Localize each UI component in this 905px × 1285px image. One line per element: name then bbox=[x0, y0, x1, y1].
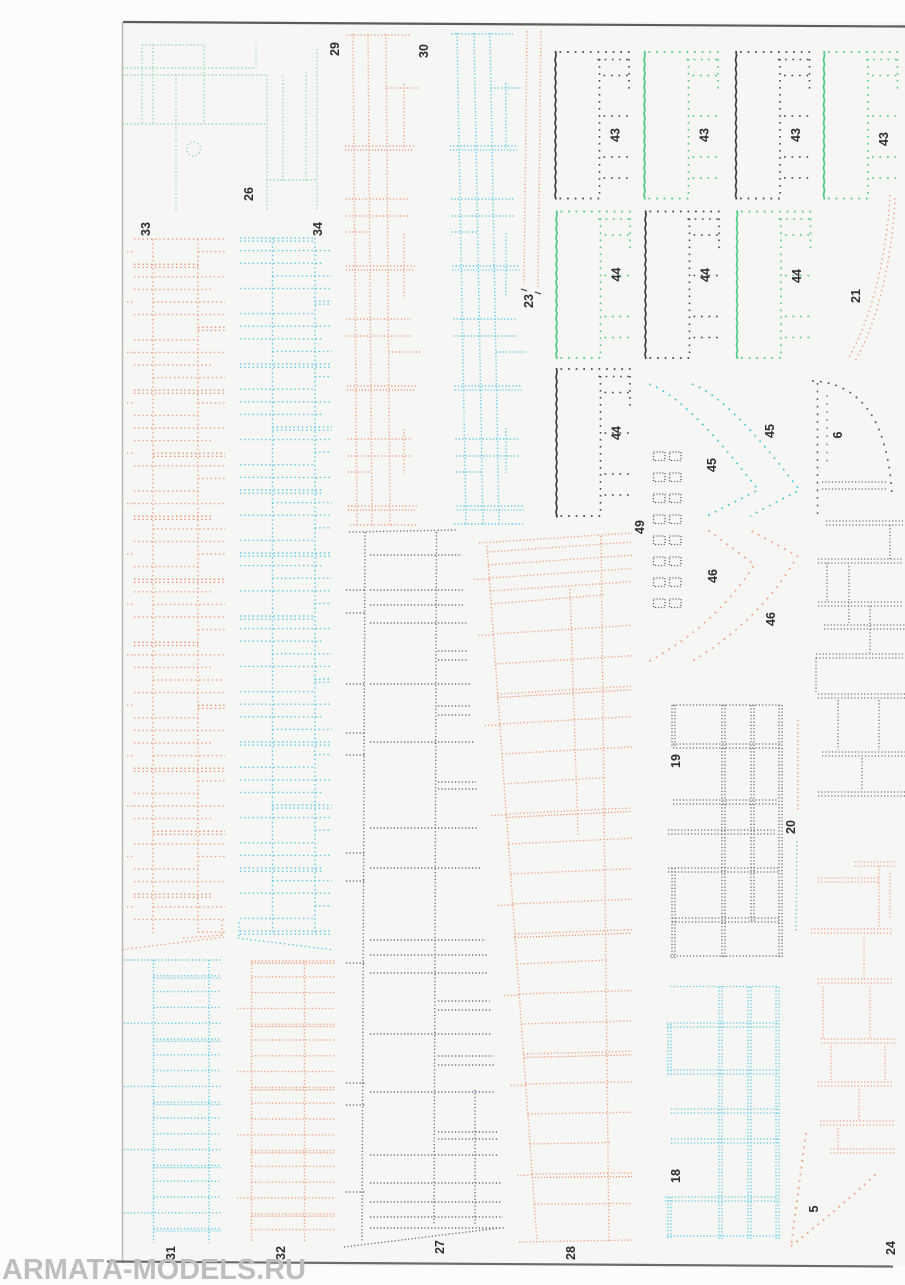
svg-text:28: 28 bbox=[564, 1246, 578, 1260]
svg-text:21: 21 bbox=[849, 289, 863, 303]
svg-text:44: 44 bbox=[610, 426, 624, 440]
svg-text:23: 23 bbox=[522, 294, 536, 308]
svg-text:29: 29 bbox=[328, 42, 342, 56]
svg-text:43: 43 bbox=[698, 128, 712, 142]
svg-text:43: 43 bbox=[609, 128, 623, 142]
svg-text:43: 43 bbox=[877, 132, 891, 146]
svg-text:49: 49 bbox=[633, 520, 647, 534]
svg-text:5: 5 bbox=[807, 1205, 821, 1212]
svg-text:26: 26 bbox=[242, 187, 256, 201]
svg-text:27: 27 bbox=[433, 1240, 447, 1254]
svg-text:24: 24 bbox=[884, 1241, 898, 1255]
svg-text:19: 19 bbox=[669, 754, 683, 768]
svg-text:44: 44 bbox=[610, 268, 624, 282]
svg-text:45: 45 bbox=[705, 458, 719, 472]
svg-text:44: 44 bbox=[699, 268, 713, 282]
svg-text:30: 30 bbox=[417, 44, 431, 58]
svg-text:34: 34 bbox=[311, 222, 325, 236]
svg-text:44: 44 bbox=[790, 269, 804, 283]
svg-text:18: 18 bbox=[669, 1169, 683, 1183]
svg-text:46: 46 bbox=[764, 612, 778, 626]
svg-text:ARMATA-MODELS.RU: ARMATA-MODELS.RU bbox=[2, 1254, 306, 1280]
svg-text:33: 33 bbox=[139, 222, 153, 236]
svg-text:43: 43 bbox=[789, 128, 803, 142]
svg-text:45: 45 bbox=[763, 424, 777, 438]
svg-text:6: 6 bbox=[831, 431, 845, 438]
svg-text:46: 46 bbox=[706, 569, 720, 583]
svg-text:20: 20 bbox=[784, 820, 798, 834]
